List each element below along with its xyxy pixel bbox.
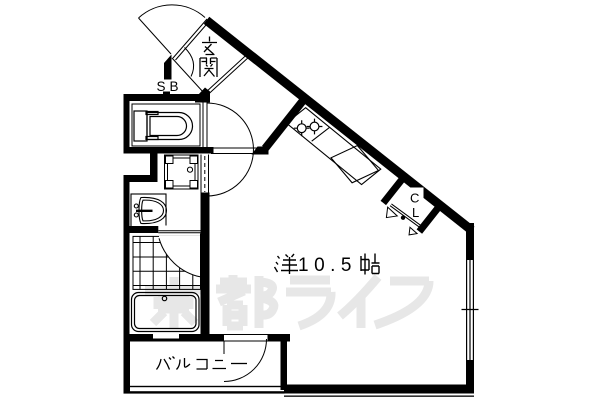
svg-text:L: L: [412, 205, 419, 220]
svg-text:C: C: [410, 191, 419, 206]
svg-text:10.5: 10.5: [298, 255, 357, 276]
